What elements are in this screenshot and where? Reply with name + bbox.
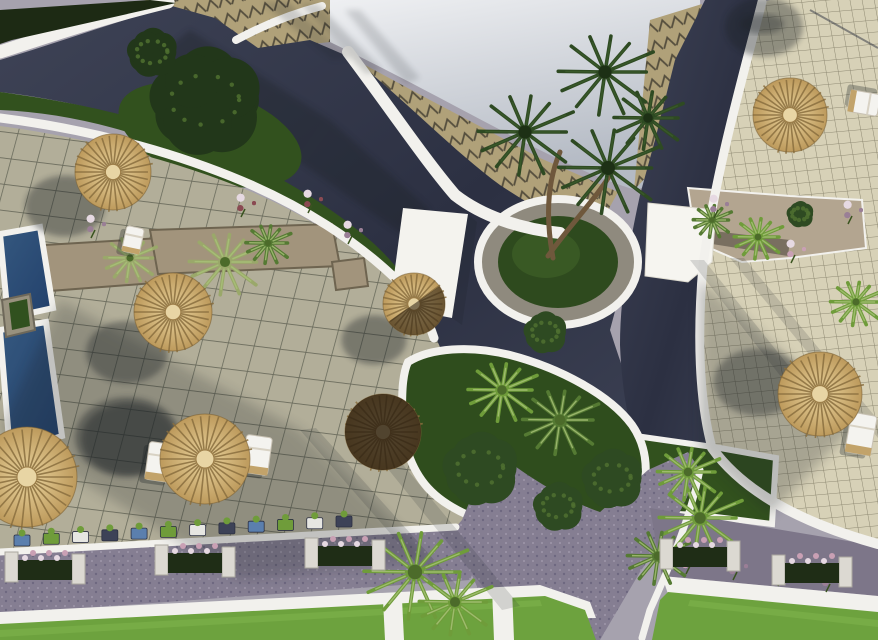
parasol-shadow: [725, 0, 803, 57]
aerial-resort-render: [0, 0, 878, 640]
sun-lounger: [843, 84, 878, 116]
spa-planter-grass: [9, 299, 30, 330]
render-canvas: [0, 0, 878, 640]
